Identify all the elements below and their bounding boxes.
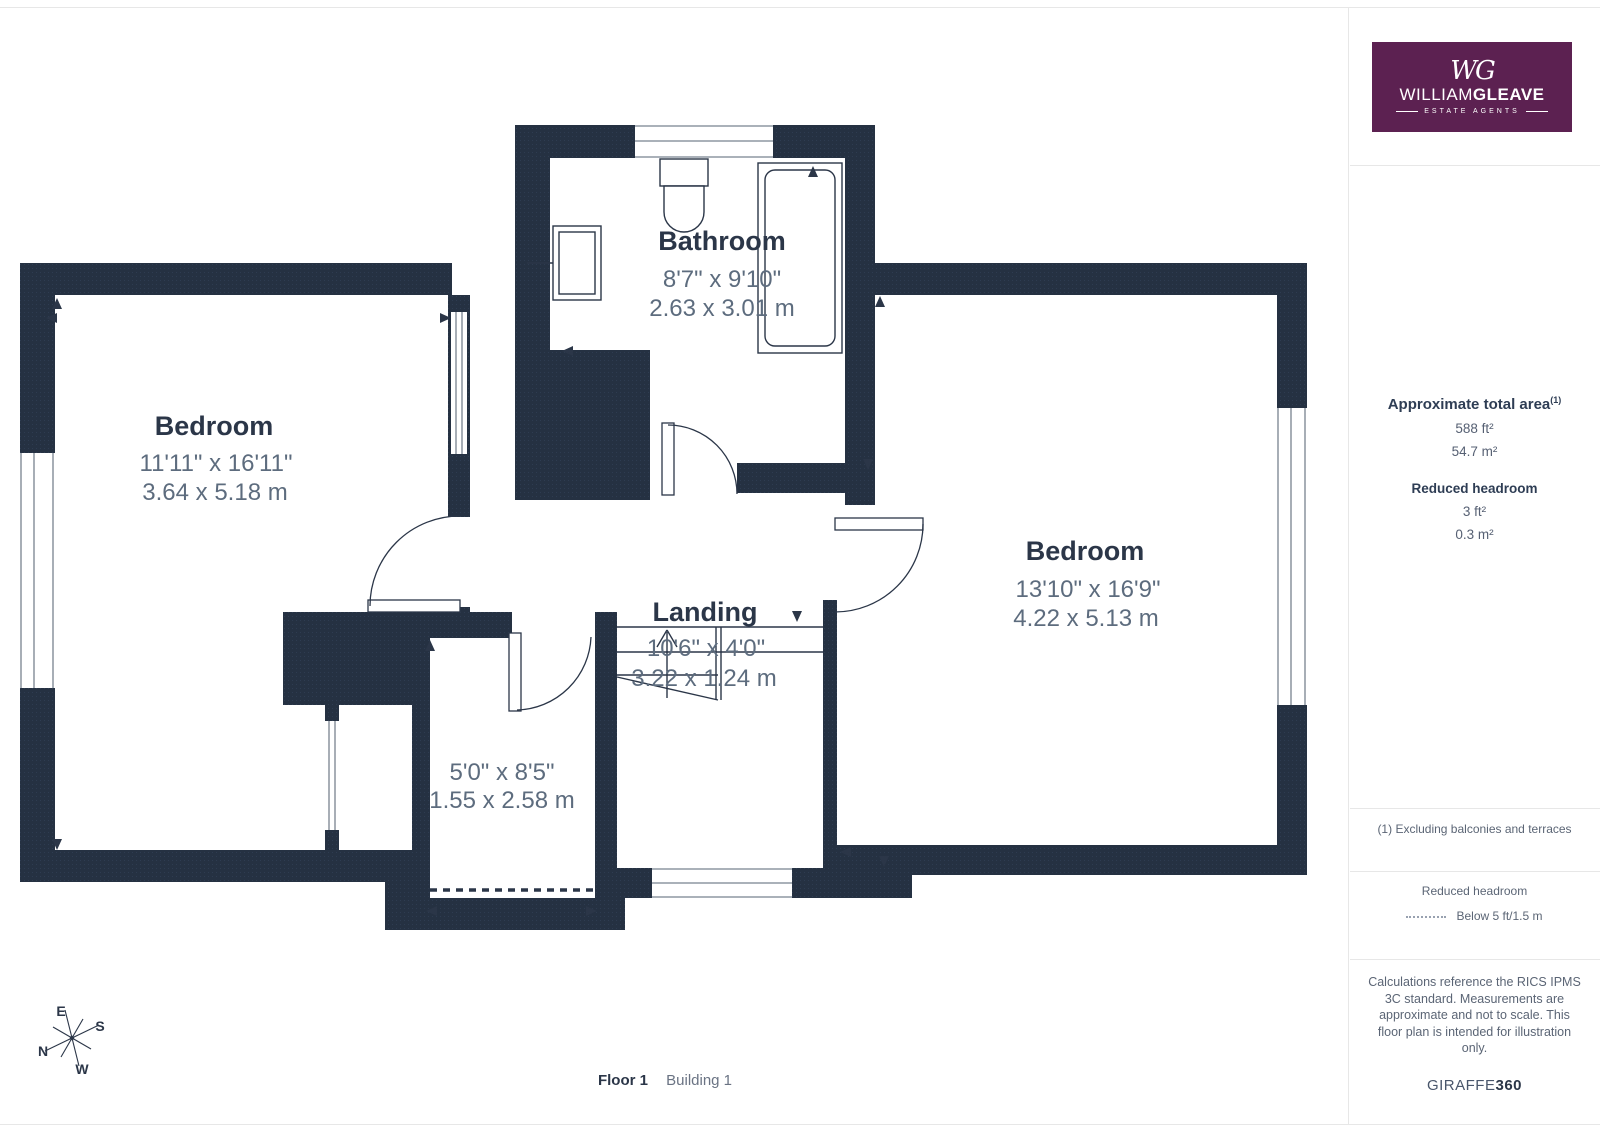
room-dims-imperial: 10'6" x 4'0" xyxy=(647,635,765,662)
door-right-bedroom xyxy=(835,518,923,612)
logo-tagline: ESTATE AGENTS xyxy=(1396,108,1548,115)
window-right-bedroom xyxy=(1277,408,1307,705)
window-left-bedroom xyxy=(20,453,55,688)
room-label-bedroom-right: Bedroom xyxy=(1026,536,1145,566)
room-dims-imperial: 13'10" x 16'9" xyxy=(1016,576,1161,603)
tagline-rule-right xyxy=(1526,111,1548,112)
window-landing xyxy=(652,868,792,898)
room-dims-metric: 3.22 x 1.24 m xyxy=(631,665,776,692)
fixtures xyxy=(527,159,842,353)
logo-name-light: WILLIAM xyxy=(1399,85,1472,104)
plan-footer: Floor 1 Building 1 xyxy=(20,1072,1310,1089)
footnote-text: (1) Excluding balconies and terraces xyxy=(1349,822,1600,836)
total-area-title: Approximate total area(1) xyxy=(1349,395,1600,413)
logo-name-bold: GLEAVE xyxy=(1473,85,1545,104)
tagline-rule-left xyxy=(1396,111,1418,112)
disclaimer-block: Calculations reference the RICS IPMS 3C … xyxy=(1349,974,1600,1094)
reduced-headroom-ft: 3 ft² xyxy=(1349,504,1600,519)
footnote-marker: (1) xyxy=(1550,395,1561,405)
legend-block: Reduced headroom Below 5 ft/1.5 m xyxy=(1349,884,1600,923)
room-label-bedroom-left: Bedroom xyxy=(155,411,274,441)
internal-window-bedroom xyxy=(451,312,467,454)
dotted-line-key xyxy=(1406,915,1446,918)
room-label-bathroom: Bathroom xyxy=(658,226,786,256)
sidebar-section-divider xyxy=(1350,959,1600,960)
floorplan-page: Bedroom 11'11" x 16'11" 3.64 x 5.18 m Ba… xyxy=(0,0,1600,1131)
compass-rose: E S N W xyxy=(38,1003,105,1077)
room-dims-metric: 3.64 x 5.18 m xyxy=(142,479,287,506)
brand-normal: GIRAFFE xyxy=(1427,1077,1496,1094)
reduced-headroom-m: 0.3 m² xyxy=(1349,527,1600,542)
door-bathroom xyxy=(662,423,737,495)
legend-row: Below 5 ft/1.5 m xyxy=(1349,909,1600,923)
total-area-ft: 588 ft² xyxy=(1349,421,1600,436)
room-dims-imperial: 11'11" x 16'11" xyxy=(140,450,293,477)
compass-east: E xyxy=(56,1003,65,1019)
compass-south: S xyxy=(95,1018,104,1034)
disclaimer-text: Calculations reference the RICS IPMS 3C … xyxy=(1368,974,1582,1057)
compass-north: N xyxy=(38,1043,48,1059)
room-dims-imperial: 5'0" x 8'5" xyxy=(450,759,555,786)
room-label-landing: Landing xyxy=(653,597,758,627)
floor-label: Floor 1 xyxy=(598,1072,648,1089)
total-area-m: 54.7 m² xyxy=(1349,444,1600,459)
room-dims-metric: 1.55 x 2.58 m xyxy=(429,787,574,814)
sidebar-section-divider xyxy=(1350,808,1600,809)
tagline-text: ESTATE AGENTS xyxy=(1424,108,1520,115)
giraffe360-brand: GIRAFFE360 xyxy=(1349,1077,1600,1094)
agency-logo: WG WILLIAMGLEAVE ESTATE AGENTS xyxy=(1372,42,1572,132)
internal-partition-glazing xyxy=(329,721,335,830)
window-bathroom xyxy=(635,125,773,158)
building-label: Building 1 xyxy=(666,1072,732,1089)
sidebar-section-divider xyxy=(1350,871,1600,872)
legend-title: Reduced headroom xyxy=(1349,884,1600,898)
toilet xyxy=(660,159,708,232)
logo-name: WILLIAMGLEAVE xyxy=(1399,85,1544,105)
room-dims-metric: 4.22 x 5.13 m xyxy=(1013,605,1158,632)
sidebar-section-divider xyxy=(1350,165,1600,166)
sidebar: WG WILLIAMGLEAVE ESTATE AGENTS Approxima… xyxy=(1349,8,1600,1125)
door-store-room xyxy=(509,633,591,711)
room-dims-imperial: 8'7" x 9'10" xyxy=(663,266,781,293)
door-left-bedroom xyxy=(368,516,460,612)
reduced-headroom-title: Reduced headroom xyxy=(1349,481,1600,496)
brand-bold: 360 xyxy=(1495,1077,1522,1094)
floor-plan-svg: Bedroom 11'11" x 16'11" 3.64 x 5.18 m Ba… xyxy=(0,0,1340,1131)
room-dims-metric: 2.63 x 3.01 m xyxy=(649,295,794,322)
legend-label: Below 5 ft/1.5 m xyxy=(1456,909,1542,923)
logo-monogram: WG xyxy=(1450,59,1494,83)
bathtub xyxy=(758,163,842,353)
area-summary: Approximate total area(1) 588 ft² 54.7 m… xyxy=(1349,395,1600,542)
